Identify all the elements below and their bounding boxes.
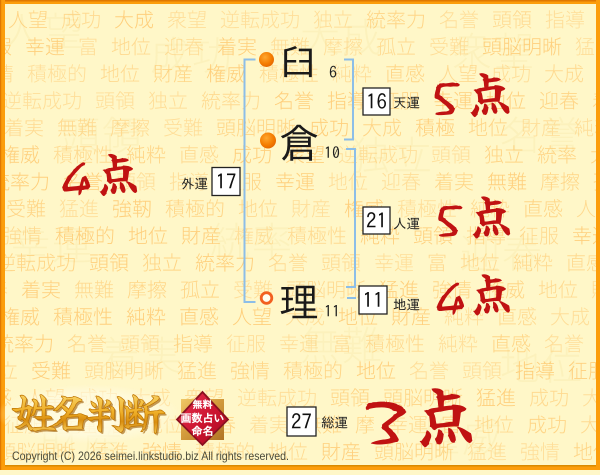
svg-text:Copyright (C) 2026 seimei.link: Copyright (C) 2026 seimei.linkstudio.biz… <box>12 449 289 463</box>
